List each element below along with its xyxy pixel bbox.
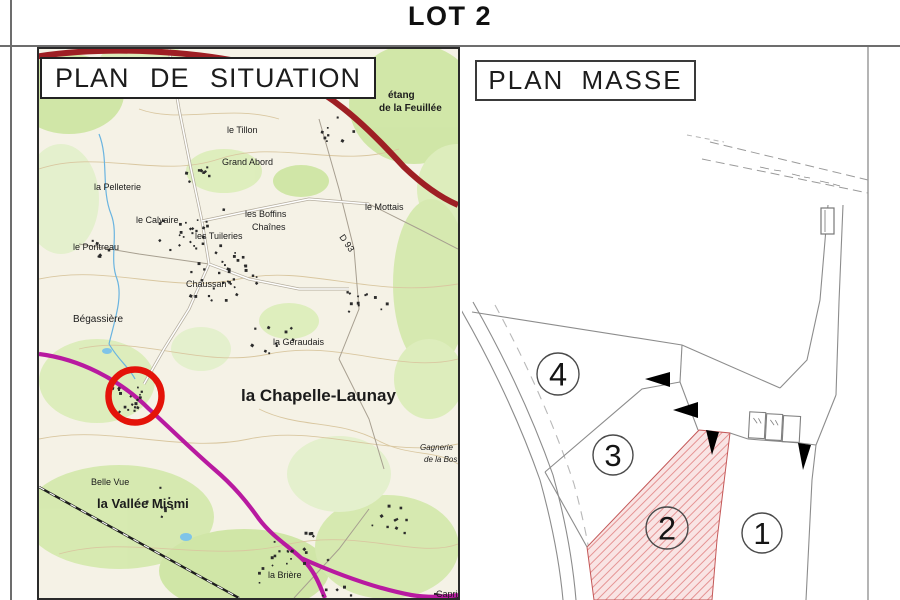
map-label: la Vallée Mismi bbox=[97, 496, 189, 511]
lot-1-marker: 1 bbox=[742, 513, 782, 553]
pond bbox=[180, 533, 192, 541]
masse-plan-svg: 4321 bbox=[462, 47, 900, 600]
left-margin-rule bbox=[10, 0, 12, 600]
situation-map-panel: le Landasétangde la Feuilléele TillonGra… bbox=[37, 47, 460, 600]
map-label: Chaînes bbox=[252, 222, 286, 232]
map-label: de la Feuillée bbox=[379, 103, 442, 114]
map-label: D 93 bbox=[337, 232, 356, 253]
map-label: le Tillon bbox=[227, 125, 258, 135]
situation-map-svg: le Landasétangde la Feuilléele TillonGra… bbox=[39, 49, 458, 598]
map-label: la Pelleterie bbox=[94, 182, 141, 192]
garage-boxes bbox=[748, 412, 800, 443]
masse-plan-panel: 4321 PLAN MASSE bbox=[462, 47, 900, 600]
svg-text:4: 4 bbox=[549, 357, 567, 393]
map-label: Chaussan bbox=[186, 279, 227, 289]
map-label: Bégassière bbox=[73, 314, 123, 325]
map-label: Grand Abord bbox=[222, 157, 273, 167]
map-label: le Calvaire bbox=[136, 215, 179, 225]
map-label: étang bbox=[388, 90, 415, 101]
map-label: la Géraudais bbox=[273, 337, 325, 347]
map-label: les Tuileries bbox=[195, 231, 243, 241]
map-label: le Mottais bbox=[365, 202, 404, 212]
svg-text:3: 3 bbox=[604, 438, 621, 473]
map-label: le Pontreau bbox=[73, 242, 119, 252]
map-label: Capric bbox=[436, 589, 458, 598]
svg-text:2: 2 bbox=[658, 511, 676, 547]
map-label: de la Bos bbox=[424, 455, 457, 464]
map-label: la Brière bbox=[268, 570, 302, 580]
map-label: la Chapelle-Launay bbox=[241, 386, 396, 405]
page-title: LOT 2 bbox=[0, 1, 900, 32]
masse-header: PLAN MASSE bbox=[475, 60, 696, 101]
access-lane bbox=[780, 205, 843, 395]
lot-4-marker: 4 bbox=[537, 353, 579, 395]
top-road bbox=[687, 135, 868, 193]
street-left bbox=[462, 302, 596, 600]
pond-small bbox=[102, 348, 112, 354]
map-label: Belle Vue bbox=[91, 477, 129, 487]
lot-3-marker: 3 bbox=[593, 435, 633, 475]
map-label: les Boffins bbox=[245, 209, 287, 219]
situation-header: PLAN DE SITUATION bbox=[40, 57, 376, 99]
svg-text:1: 1 bbox=[753, 516, 770, 551]
map-label: Gagnerie bbox=[420, 443, 453, 452]
